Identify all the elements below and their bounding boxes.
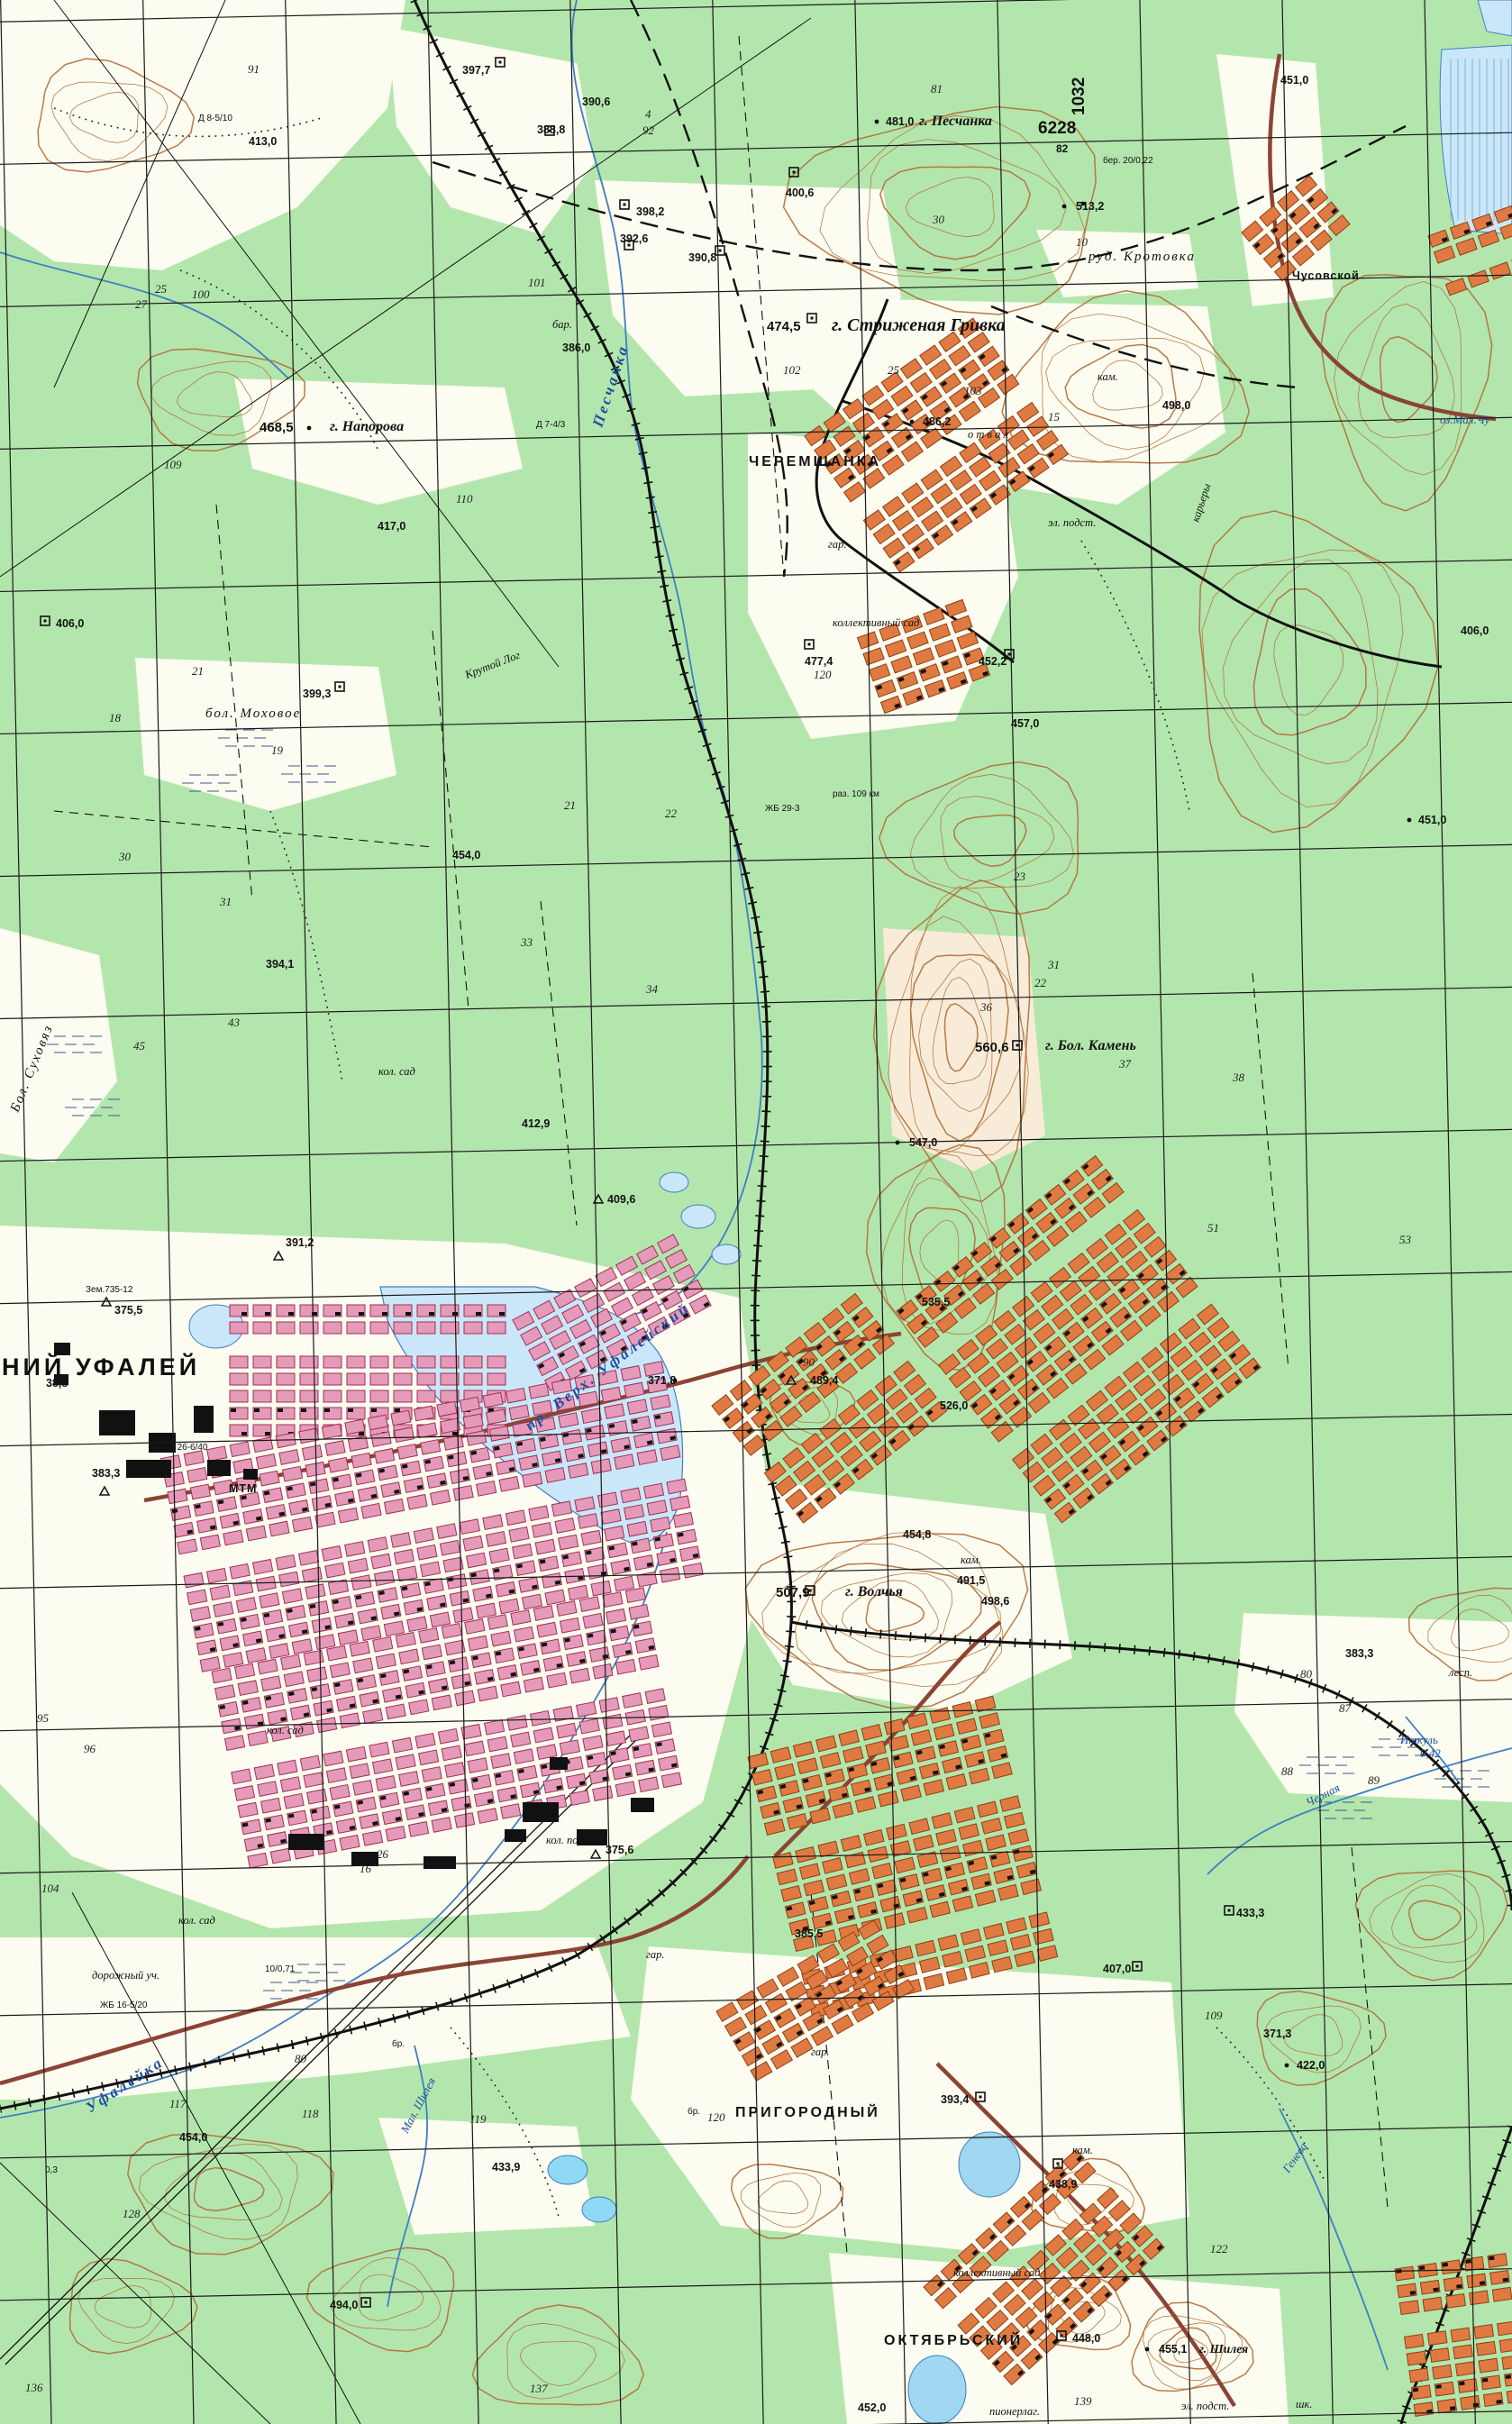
map-label: 507,9: [776, 1585, 810, 1600]
map-label: 371,3: [1263, 2028, 1291, 2040]
map-label: 383,3: [1345, 1647, 1373, 1660]
map-label: шк.: [1296, 2398, 1312, 2410]
map-label: 468,5: [260, 420, 294, 435]
map-label: 451,0: [1418, 814, 1446, 826]
map-label: коллективный сад: [833, 616, 919, 629]
map-label: г. Волчья: [845, 1584, 903, 1599]
industrial-building: [505, 1829, 526, 1842]
map-label: 406,0: [1461, 624, 1489, 637]
map-label: гар.: [646, 1948, 665, 1961]
map-label: 136: [25, 2381, 43, 2394]
map-label: 38,8: [46, 1377, 68, 1390]
map-label: 139: [1074, 2394, 1092, 2408]
map-label: 491,5: [957, 1574, 985, 1587]
map-label: эл. подст.: [1048, 516, 1096, 529]
map-label: 455,1: [1159, 2343, 1187, 2356]
map-label: Зем.735-12: [86, 1285, 133, 1295]
map-label: 4: [645, 107, 651, 121]
map-label: бер. 20/0,22: [1103, 155, 1153, 166]
map-label: 390,6: [582, 96, 610, 108]
map-label: 81: [931, 82, 943, 96]
map-label: 34: [645, 982, 659, 996]
map-label: ЖБ 16-5/20: [100, 2000, 148, 2010]
map-label: 25: [888, 363, 900, 377]
map-label: 407,0: [1103, 1963, 1131, 1975]
industrial-building: [424, 1856, 456, 1869]
map-canvas: ЧЕРЕМШАНКАПРИГОРОДНЫЙОКТЯБРЬСКИЙХНИЙ УФА…: [0, 0, 1512, 2424]
map-label: кам.: [1098, 370, 1118, 383]
map-label: 33: [520, 935, 533, 949]
map-label: 51: [1207, 1221, 1219, 1235]
map-label: 394,1: [266, 958, 294, 971]
map-label: кол. сад: [267, 1724, 304, 1736]
map-label: Иткуль: [1399, 1733, 1438, 1746]
map-label: 31: [1047, 958, 1060, 971]
map-label: 53: [1399, 1233, 1412, 1246]
map-label: 498,6: [981, 1595, 1009, 1608]
map-label: бол. Моховое: [205, 706, 301, 721]
map-label: 399,3: [303, 688, 331, 700]
map-label: 96: [84, 1742, 96, 1755]
map-label: 26: [377, 1847, 389, 1861]
map-label: 393,4: [941, 2093, 969, 2106]
map-label: 91: [248, 62, 260, 76]
map-label: 119: [469, 2112, 487, 2126]
map-label: 498,0: [1162, 399, 1190, 412]
map-label: 120: [814, 668, 832, 681]
map-label: г. Бол. Камень: [1045, 1038, 1136, 1053]
map-label: эл. подст.: [1181, 2400, 1229, 2412]
map-label: 451,0: [1280, 74, 1308, 87]
map-label: дорожный уч.: [92, 1969, 159, 1982]
map-label: 560,6: [975, 1040, 1009, 1055]
map-label: 477,4: [805, 655, 833, 668]
industrial-building: [288, 1834, 324, 1850]
spot-height-dot: [1285, 2064, 1289, 2068]
map-label: ХНИЙ УФАЛЕЙ: [0, 1353, 200, 1381]
map-label: оз.Мал.Чу: [1440, 413, 1490, 426]
map-label: 474,5: [767, 319, 801, 334]
map-label: 398,2: [636, 205, 664, 218]
map-label: кам.: [1072, 2144, 1093, 2156]
spot-height-dot: [307, 426, 312, 431]
map-label: 31: [219, 895, 232, 908]
map-label: 452,2: [979, 655, 1006, 668]
map-label: кол. сад: [378, 1065, 415, 1078]
map-label: Д 8-5/10: [198, 114, 232, 123]
map-label: 388,8: [537, 123, 565, 136]
map-label: лесп.: [1448, 1666, 1472, 1679]
map-label: г. Шилея: [1199, 2342, 1248, 2356]
map-label: 16: [360, 1862, 372, 1875]
map-label: 109: [164, 458, 182, 471]
spot-height-dot: [896, 1141, 900, 1145]
map-label: 10: [1076, 235, 1088, 249]
map-label: бр.: [392, 2038, 405, 2049]
map-label: 452,0: [858, 2401, 886, 2414]
map-label: 489,4: [810, 1374, 838, 1387]
map-label: 102: [783, 363, 801, 377]
map-label: 422,0: [1297, 2059, 1325, 2072]
map-label: 100: [192, 287, 210, 301]
map-label: 118: [302, 2107, 319, 2120]
map-label: 128: [123, 2207, 141, 2220]
map-label: 433,3: [1236, 1907, 1264, 1919]
map-label: кол. сад: [178, 1914, 215, 1927]
map-label: г. Напорова: [330, 419, 404, 434]
map-label: ОКТЯБРЬСКИЙ: [884, 2331, 1023, 2348]
industrial-building: [207, 1460, 231, 1476]
map-label: кол. подст.: [546, 1834, 600, 1846]
map-label: 36: [979, 1000, 993, 1014]
map-label: 413,0: [249, 135, 277, 148]
map-label: 82: [1056, 142, 1069, 155]
map-label: 37: [1118, 1057, 1132, 1071]
map-label: 103: [964, 384, 982, 397]
map-label: 433,9: [492, 2161, 520, 2173]
map-label: 95: [37, 1711, 50, 1725]
map-label: Чусовской: [1292, 269, 1360, 282]
map-label: 21: [564, 798, 576, 812]
map-label: кам.: [961, 1554, 981, 1566]
map-label: коллективный сад: [953, 2266, 1040, 2279]
map-label: 409,6: [607, 1193, 635, 1206]
map-label: 454,0: [179, 2131, 207, 2144]
map-label: 406,0: [56, 617, 84, 630]
map-label: 117: [169, 2097, 187, 2110]
map-label: 454,8: [903, 1528, 931, 1541]
map-label: 101: [528, 276, 546, 289]
map-label: 535,5: [922, 1296, 950, 1308]
map-label: раз. 109 км: [833, 789, 879, 799]
spot-height-dot: [910, 420, 915, 424]
map-label: 448,0: [1072, 2332, 1100, 2345]
map-label: 38: [1232, 1071, 1245, 1084]
map-label: 386,0: [562, 342, 590, 354]
map-label: 137: [530, 2382, 548, 2395]
map-label: 0,42: [1420, 1746, 1441, 1760]
map-label: 454,0: [452, 849, 480, 861]
map-label: 45: [133, 1039, 146, 1053]
map-label: 109: [1205, 2009, 1223, 2022]
map-label: 412,9: [522, 1117, 550, 1130]
map-label: МТМ: [229, 1482, 257, 1495]
map-label: 494,0: [330, 2299, 358, 2311]
map-label: 375,5: [114, 1304, 142, 1317]
map-label: 23: [1014, 870, 1026, 883]
map-label: 25: [155, 282, 168, 296]
map-label: 19: [271, 743, 284, 757]
map-label: 15: [1048, 410, 1061, 424]
map-label: 391,2: [286, 1236, 314, 1249]
map-label: 22: [1034, 976, 1047, 989]
map-label: 0,3: [45, 2165, 58, 2175]
map-label: ПРИГОРОДНЫЙ: [735, 2103, 880, 2120]
map-label: г. Песчанка: [919, 114, 992, 129]
spot-height-dot: [1062, 205, 1067, 209]
map-label: Д 7-4/3: [536, 420, 566, 430]
map-label: 92: [642, 123, 655, 137]
map-label: 110: [456, 492, 473, 506]
map-label: 122: [1210, 2242, 1228, 2255]
map-label: 375,6: [606, 1844, 633, 1856]
map-label: 89: [1368, 1773, 1380, 1787]
map-label: 90: [803, 1355, 815, 1369]
map-label: 104: [41, 1882, 59, 1895]
industrial-building: [523, 1802, 559, 1822]
map-label: 457,0: [1011, 717, 1039, 730]
spot-height-dot: [1145, 2347, 1150, 2352]
map-label: бар.: [552, 318, 572, 331]
map-label: пионерлаг.: [989, 2405, 1040, 2418]
map-label: 87: [1339, 1701, 1352, 1715]
spot-height-dot: [875, 120, 879, 124]
map-label: гар.: [811, 2046, 830, 2058]
map-label: руд. Кротовка: [1088, 250, 1196, 264]
map-label: 385,5: [795, 1927, 823, 1940]
map-label: 27: [135, 297, 148, 311]
map-label: 80: [295, 2052, 307, 2065]
map-label: 526,0: [940, 1399, 968, 1412]
map-label: 30: [932, 213, 945, 226]
map-label: 80: [1300, 1667, 1313, 1681]
map-label: 481,0: [886, 115, 914, 128]
map-label: гар.: [828, 538, 847, 551]
map-label: 371,8: [648, 1374, 676, 1387]
map-label: 21: [192, 664, 204, 678]
map-label: 10/0,71: [265, 1964, 296, 1974]
map-label: кам.: [102, 1406, 123, 1418]
map-label: 120: [707, 2110, 725, 2124]
spot-height-dot: [1407, 818, 1412, 823]
map-label: 43: [228, 1016, 241, 1029]
map-label: 400,6: [786, 187, 814, 199]
map-label: ЖБ 26-6/40: [160, 1443, 208, 1453]
map-label: 88: [1281, 1764, 1294, 1778]
topographic-map[interactable]: ЧЕРЕМШАНКАПРИГОРОДНЫЙОКТЯБРЬСКИЙХНИЙ УФА…: [0, 0, 1512, 2424]
map-label: ЖБ 29-3: [765, 804, 800, 814]
map-label: 1032: [1070, 77, 1088, 115]
map-label: 438,9: [1049, 2178, 1077, 2191]
map-label: 417,0: [378, 520, 405, 533]
map-label: 18: [109, 711, 122, 724]
map-label: 392,6: [620, 232, 648, 245]
map-label: 22: [665, 806, 678, 820]
industrial-building: [631, 1798, 654, 1812]
map-label: 486,2: [923, 415, 951, 428]
map-label: ЧЕРЕМШАНКА: [749, 454, 881, 469]
map-label: 547,0: [909, 1136, 937, 1149]
industrial-building: [194, 1406, 214, 1433]
map-label: 513,2: [1076, 200, 1104, 213]
map-label: бр.: [688, 2106, 700, 2117]
map-label: 6228: [1038, 119, 1076, 138]
map-label: 30: [118, 850, 132, 863]
map-label: 383,3: [92, 1467, 120, 1480]
map-label: 390,8: [688, 251, 716, 264]
map-label: о т в а л: [968, 428, 1008, 441]
industrial-building: [126, 1460, 171, 1478]
industrial-building: [550, 1757, 568, 1770]
industrial-building: [243, 1469, 258, 1480]
map-label: 397,7: [462, 64, 490, 77]
map-label: г. Стриженая Гривка: [832, 315, 1006, 335]
